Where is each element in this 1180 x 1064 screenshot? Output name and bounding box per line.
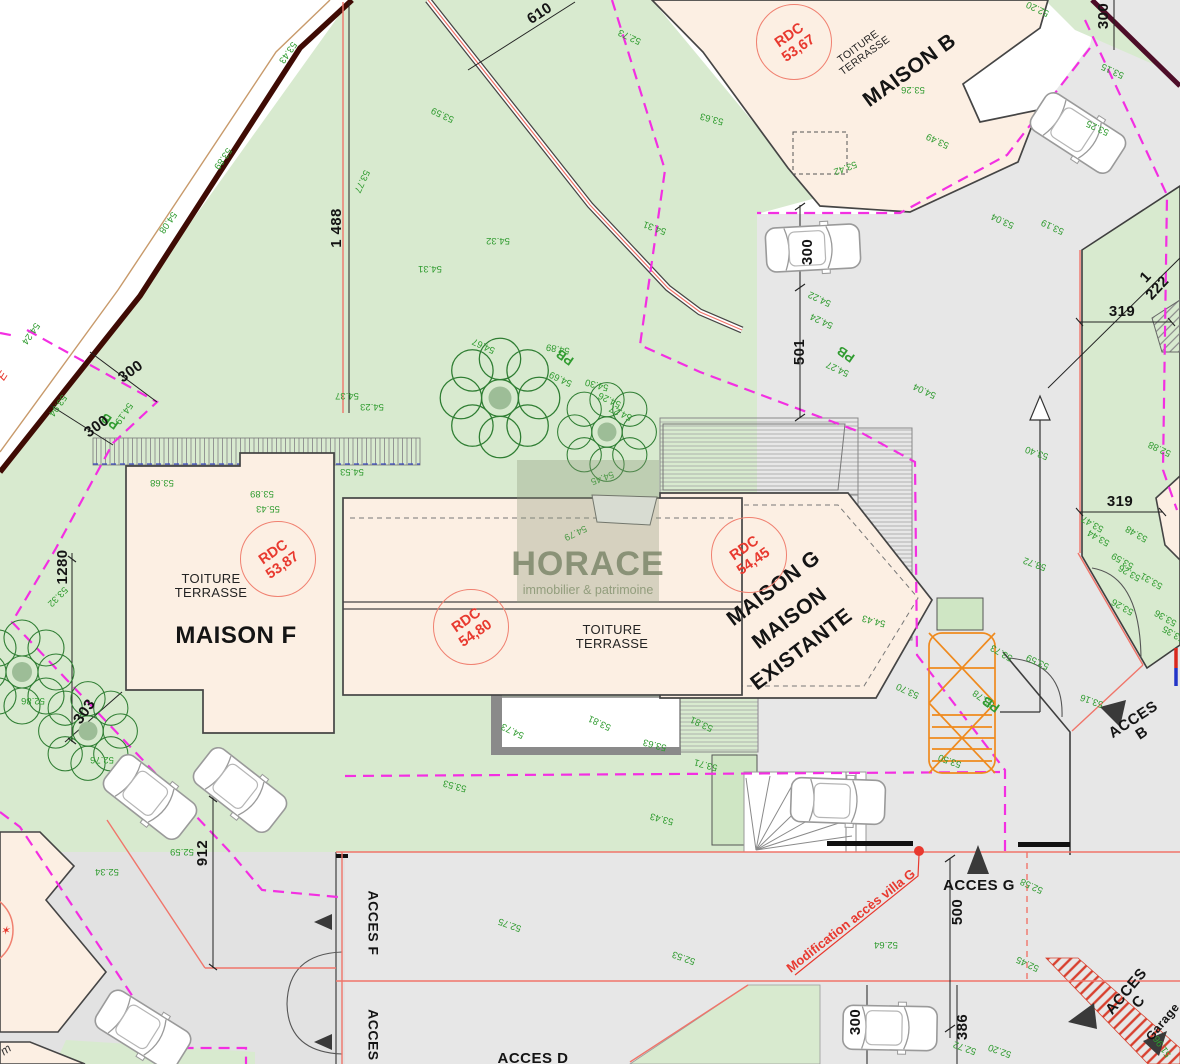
area-green-patch-g (937, 598, 983, 630)
site-plan: HORACE immobilier & patrimoine 52.2052.7… (0, 0, 1180, 1064)
watermark-name: HORACE (511, 547, 664, 581)
pool (491, 695, 681, 755)
watermark-tagline: immobilier & patrimoine (523, 583, 654, 597)
watermark-logo: HORACE immobilier & patrimoine (517, 460, 659, 603)
car (765, 220, 862, 277)
car (843, 1001, 938, 1055)
deck-north (660, 418, 858, 495)
car (790, 773, 886, 828)
